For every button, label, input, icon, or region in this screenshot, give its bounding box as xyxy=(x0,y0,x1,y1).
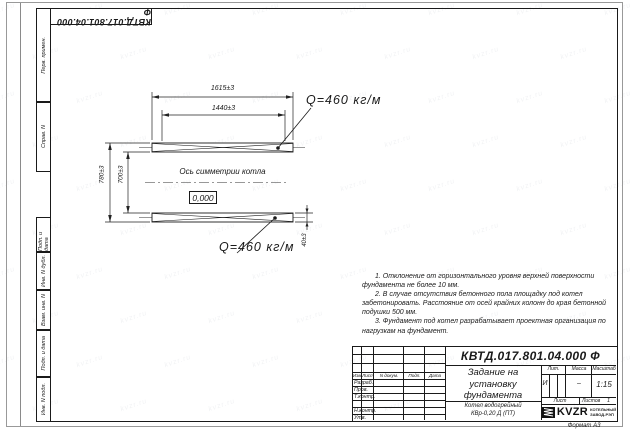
dim-label-40: 40±3 xyxy=(302,220,308,260)
level-mark-box: 0,000 xyxy=(189,191,217,204)
mass-value: – xyxy=(566,380,592,387)
format-label: Формат А3 xyxy=(534,423,634,429)
document-title-line: установку xyxy=(445,379,541,391)
note-line: забетонировать. Расстояние от осей крайн… xyxy=(362,299,618,308)
lit-label: Лит. xyxy=(541,366,566,372)
sheets-value: 1 xyxy=(607,398,610,404)
col-izm: Изм. xyxy=(353,373,362,378)
drawing-sheet: kvzr.rukvzr.rukvzr.rukvzr.rukvzr.rukvzr.… xyxy=(0,0,644,430)
spring-coil-icon xyxy=(542,407,555,418)
document-title-line: Задание на xyxy=(445,367,541,379)
company-logo: KVZR КОТЕЛЬНЫЙ ЗАВОД-РЭП xyxy=(542,405,616,420)
load-label-bottom: Q=460 кг/м xyxy=(219,240,294,254)
sheet-label: Лист xyxy=(541,398,579,404)
margin-label: Подп. и дата xyxy=(38,218,50,251)
dim-label-1615: 1615±3 xyxy=(152,85,293,92)
margin-box-podp-data-2: Подп. и дата xyxy=(36,330,51,377)
dim-label-780: 780±3 xyxy=(99,155,106,195)
col-docnum: N докум. xyxy=(374,373,404,378)
dim-label-1440: 1440±3 xyxy=(162,105,285,112)
row-tkontr: Т.контр. xyxy=(354,394,374,400)
col-list: Лист xyxy=(362,373,374,378)
note-line: 2. В случае отсутствия бетонного пола пл… xyxy=(375,290,618,299)
margin-box-sprav-n: Справ. N xyxy=(36,102,51,172)
margin-box-vzam-inv: Взам. инв. N xyxy=(36,290,51,330)
row-prov: Пров. xyxy=(354,387,374,393)
margin-label: Подп. и дата xyxy=(41,336,47,370)
margin-label: Перв. примен. xyxy=(41,37,47,74)
level-mark-value: 0,000 xyxy=(192,193,213,203)
mass-label: Масса xyxy=(566,366,592,372)
scale-value: 1:15 xyxy=(592,380,616,389)
note-line: подушки 500 мм. xyxy=(362,308,618,317)
product-name: Котел водогрейный КВр-0,20 Д (ПТ) xyxy=(445,403,541,418)
col-podp: Подп. xyxy=(404,373,425,378)
note-line: фундамента не более 10 мм. xyxy=(362,281,618,290)
margin-box-podp-data-1: Подп. и дата xyxy=(36,217,51,252)
product-name-line: КВр-0,20 Д (ПТ) xyxy=(445,411,541,419)
row-nkontr: Н.контр. xyxy=(354,408,374,414)
logo-subtitle: КОТЕЛЬНЫЙ ЗАВОД-РЭП xyxy=(590,408,616,417)
notes-block: 1. Отклонение от горизонтального уровня … xyxy=(362,272,618,336)
symmetry-axis-label: Ось симметрии котла xyxy=(152,167,293,176)
row-razrab: Разраб. xyxy=(354,380,374,386)
corner-designation-text: КВТД.017.801.04.000 Ф xyxy=(51,7,151,27)
load-label-top: Q=460 кг/м xyxy=(306,93,381,107)
dimension-lines xyxy=(105,92,313,230)
note-line: 1. Отклонение от горизонтального уровня … xyxy=(375,272,618,281)
margin-label: Инв. N дубл. xyxy=(41,255,47,287)
margin-label: Взам. инв. N xyxy=(41,294,47,326)
logo-subtitle-line: ЗАВОД-РЭП xyxy=(590,413,616,418)
scale-label: Масштаб xyxy=(592,366,616,372)
product-name-line: Котел водогрейный xyxy=(445,403,541,411)
sheets-label: Листов xyxy=(582,398,600,404)
col-data: Дата xyxy=(425,373,445,378)
margin-label: Инв. N подл. xyxy=(41,383,47,415)
margin-label: Справ. N xyxy=(41,125,47,148)
document-title-line: фундамента xyxy=(445,390,541,402)
title-block: КВТД.017.801.04.000 Ф Задание на установ… xyxy=(352,346,618,422)
document-title: Задание на установку фундамента xyxy=(445,367,541,402)
margin-box-inv-dubl: Инв. N дубл. xyxy=(36,252,51,290)
lit-value: И xyxy=(541,380,549,387)
beam-top xyxy=(152,143,293,152)
dim-label-700: 700±3 xyxy=(118,155,125,195)
note-line: 3. Фундамент под котел разрабатывает про… xyxy=(375,317,618,326)
logo-name: KVZR xyxy=(557,407,588,418)
row-utv: Утв. xyxy=(354,415,374,421)
corner-designation-stamp: КВТД.017.801.04.000 Ф xyxy=(50,8,152,25)
leader-lines xyxy=(237,108,311,253)
margin-box-inv-podl: Инв. N подл. xyxy=(36,377,51,422)
note-line: нагрузкам на фундамент. xyxy=(362,327,618,336)
title-block-designation: КВТД.017.801.04.000 Ф xyxy=(445,347,616,365)
margin-box-perv-primen: Перв. примен. xyxy=(36,8,51,102)
